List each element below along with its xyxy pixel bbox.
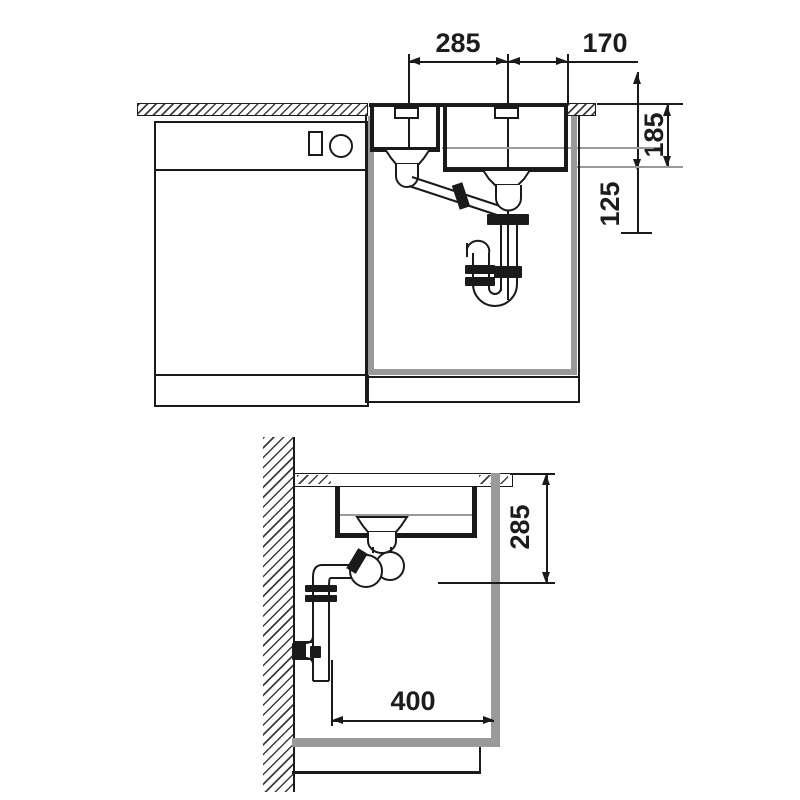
pipe-coupling-side — [305, 595, 337, 602]
technical-drawing-canvas: 285 170 125 185 — [0, 0, 800, 800]
wall-coupling — [310, 646, 321, 658]
connection-pipe — [409, 177, 500, 215]
front-view-plumbing — [385, 149, 530, 306]
pipe-band — [494, 266, 522, 278]
outlet-elbow — [313, 565, 330, 588]
plumbing-overlay — [0, 0, 800, 800]
trap-outlet-elbow — [467, 241, 489, 257]
drain-cup-left — [396, 164, 418, 187]
drain-cup-right — [496, 185, 521, 211]
wall-coupling — [292, 643, 306, 660]
trap-band — [465, 265, 495, 274]
trap-band — [465, 277, 495, 286]
side-view-plumbing — [292, 517, 407, 681]
drain-flange-left — [385, 149, 430, 164]
drain-flange-right — [483, 170, 530, 185]
pipe-coupling-side — [305, 585, 337, 592]
siphon-down-pipe — [501, 225, 517, 291]
pipe-coupling — [457, 184, 465, 208]
drain-flange-side — [357, 517, 407, 532]
outlet-pipe-vertical — [313, 577, 329, 681]
siphon-nut — [487, 214, 529, 225]
